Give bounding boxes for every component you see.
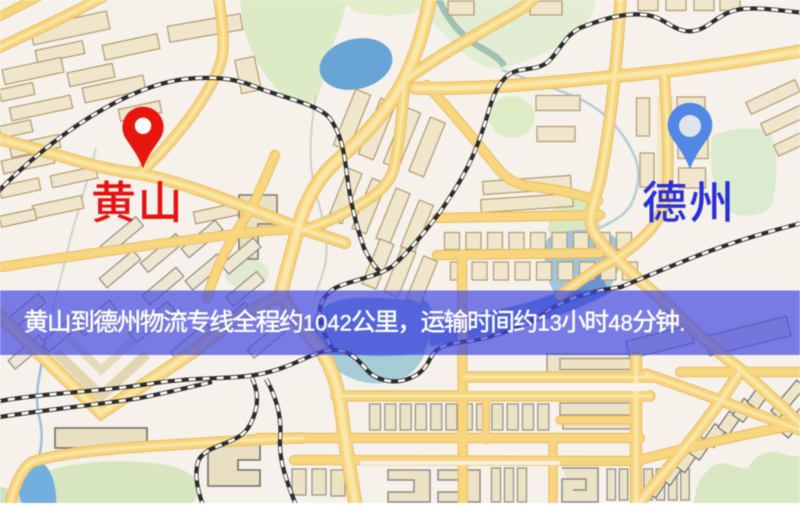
svg-text:48: 48: [608, 311, 632, 336]
svg-text:.: .: [679, 311, 685, 336]
svg-text:13: 13: [537, 311, 561, 336]
svg-text:1042: 1042: [303, 311, 352, 336]
